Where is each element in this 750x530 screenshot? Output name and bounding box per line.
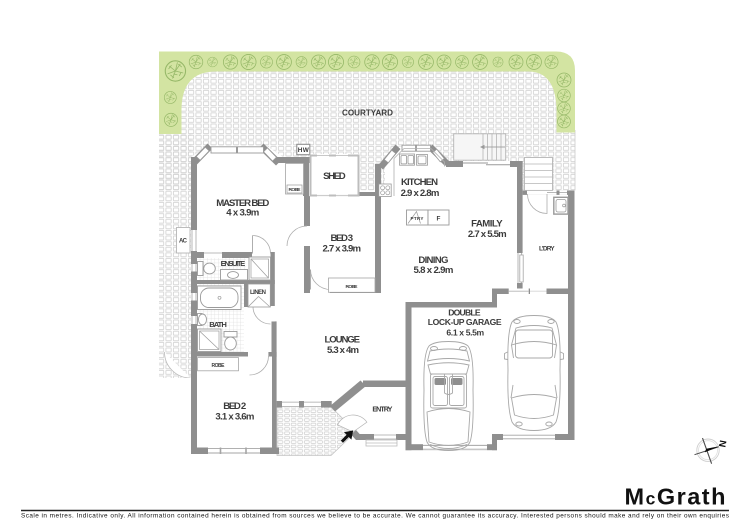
svg-text:PTRY: PTRY bbox=[411, 216, 424, 221]
svg-text:COURTYARD: COURTYARD bbox=[342, 107, 393, 117]
svg-text:F: F bbox=[437, 215, 441, 222]
svg-text:BED 2: BED 2 bbox=[223, 401, 246, 412]
svg-text:LOCK-UP GARAGE: LOCK-UP GARAGE bbox=[428, 317, 502, 327]
svg-text:3.1 x 3.6m: 3.1 x 3.6m bbox=[215, 412, 254, 423]
svg-text:ROBE: ROBE bbox=[289, 187, 302, 193]
svg-text:SHED: SHED bbox=[323, 171, 346, 182]
svg-text:2.9 x 2.8m: 2.9 x 2.8m bbox=[401, 188, 440, 199]
svg-text:HW: HW bbox=[298, 147, 310, 154]
svg-text:BATH: BATH bbox=[209, 320, 227, 329]
svg-text:2.7 x 3.9m: 2.7 x 3.9m bbox=[323, 243, 362, 254]
svg-text:6.1 x 5.5m: 6.1 x 5.5m bbox=[446, 327, 484, 337]
svg-text:LOUNGE: LOUNGE bbox=[325, 335, 361, 346]
svg-text:Scale in metres. Indicative on: Scale in metres. Indicative only. All in… bbox=[21, 513, 729, 520]
svg-text:4 x 3.9m: 4 x 3.9m bbox=[226, 208, 259, 219]
svg-text:ROBE: ROBE bbox=[346, 284, 359, 290]
svg-text:FAMILY: FAMILY bbox=[471, 218, 503, 229]
svg-text:2.7 x 5.5m: 2.7 x 5.5m bbox=[468, 229, 507, 240]
svg-text:AC: AC bbox=[179, 239, 188, 245]
svg-text:LINEN: LINEN bbox=[250, 290, 266, 296]
svg-text:BED 3: BED 3 bbox=[331, 233, 354, 244]
svg-text:ENTRY: ENTRY bbox=[372, 405, 392, 414]
svg-text:KITCHEN: KITCHEN bbox=[401, 177, 438, 188]
svg-text:5.8 x 2.9m: 5.8 x 2.9m bbox=[413, 265, 453, 276]
svg-text:ENSUITE: ENSUITE bbox=[221, 259, 246, 268]
svg-text:McGrath: McGrath bbox=[625, 484, 728, 510]
svg-text:ROBE: ROBE bbox=[212, 363, 226, 369]
svg-text:5.3 x 4m: 5.3 x 4m bbox=[327, 345, 359, 356]
svg-text:L’DRY: L’DRY bbox=[539, 246, 555, 253]
